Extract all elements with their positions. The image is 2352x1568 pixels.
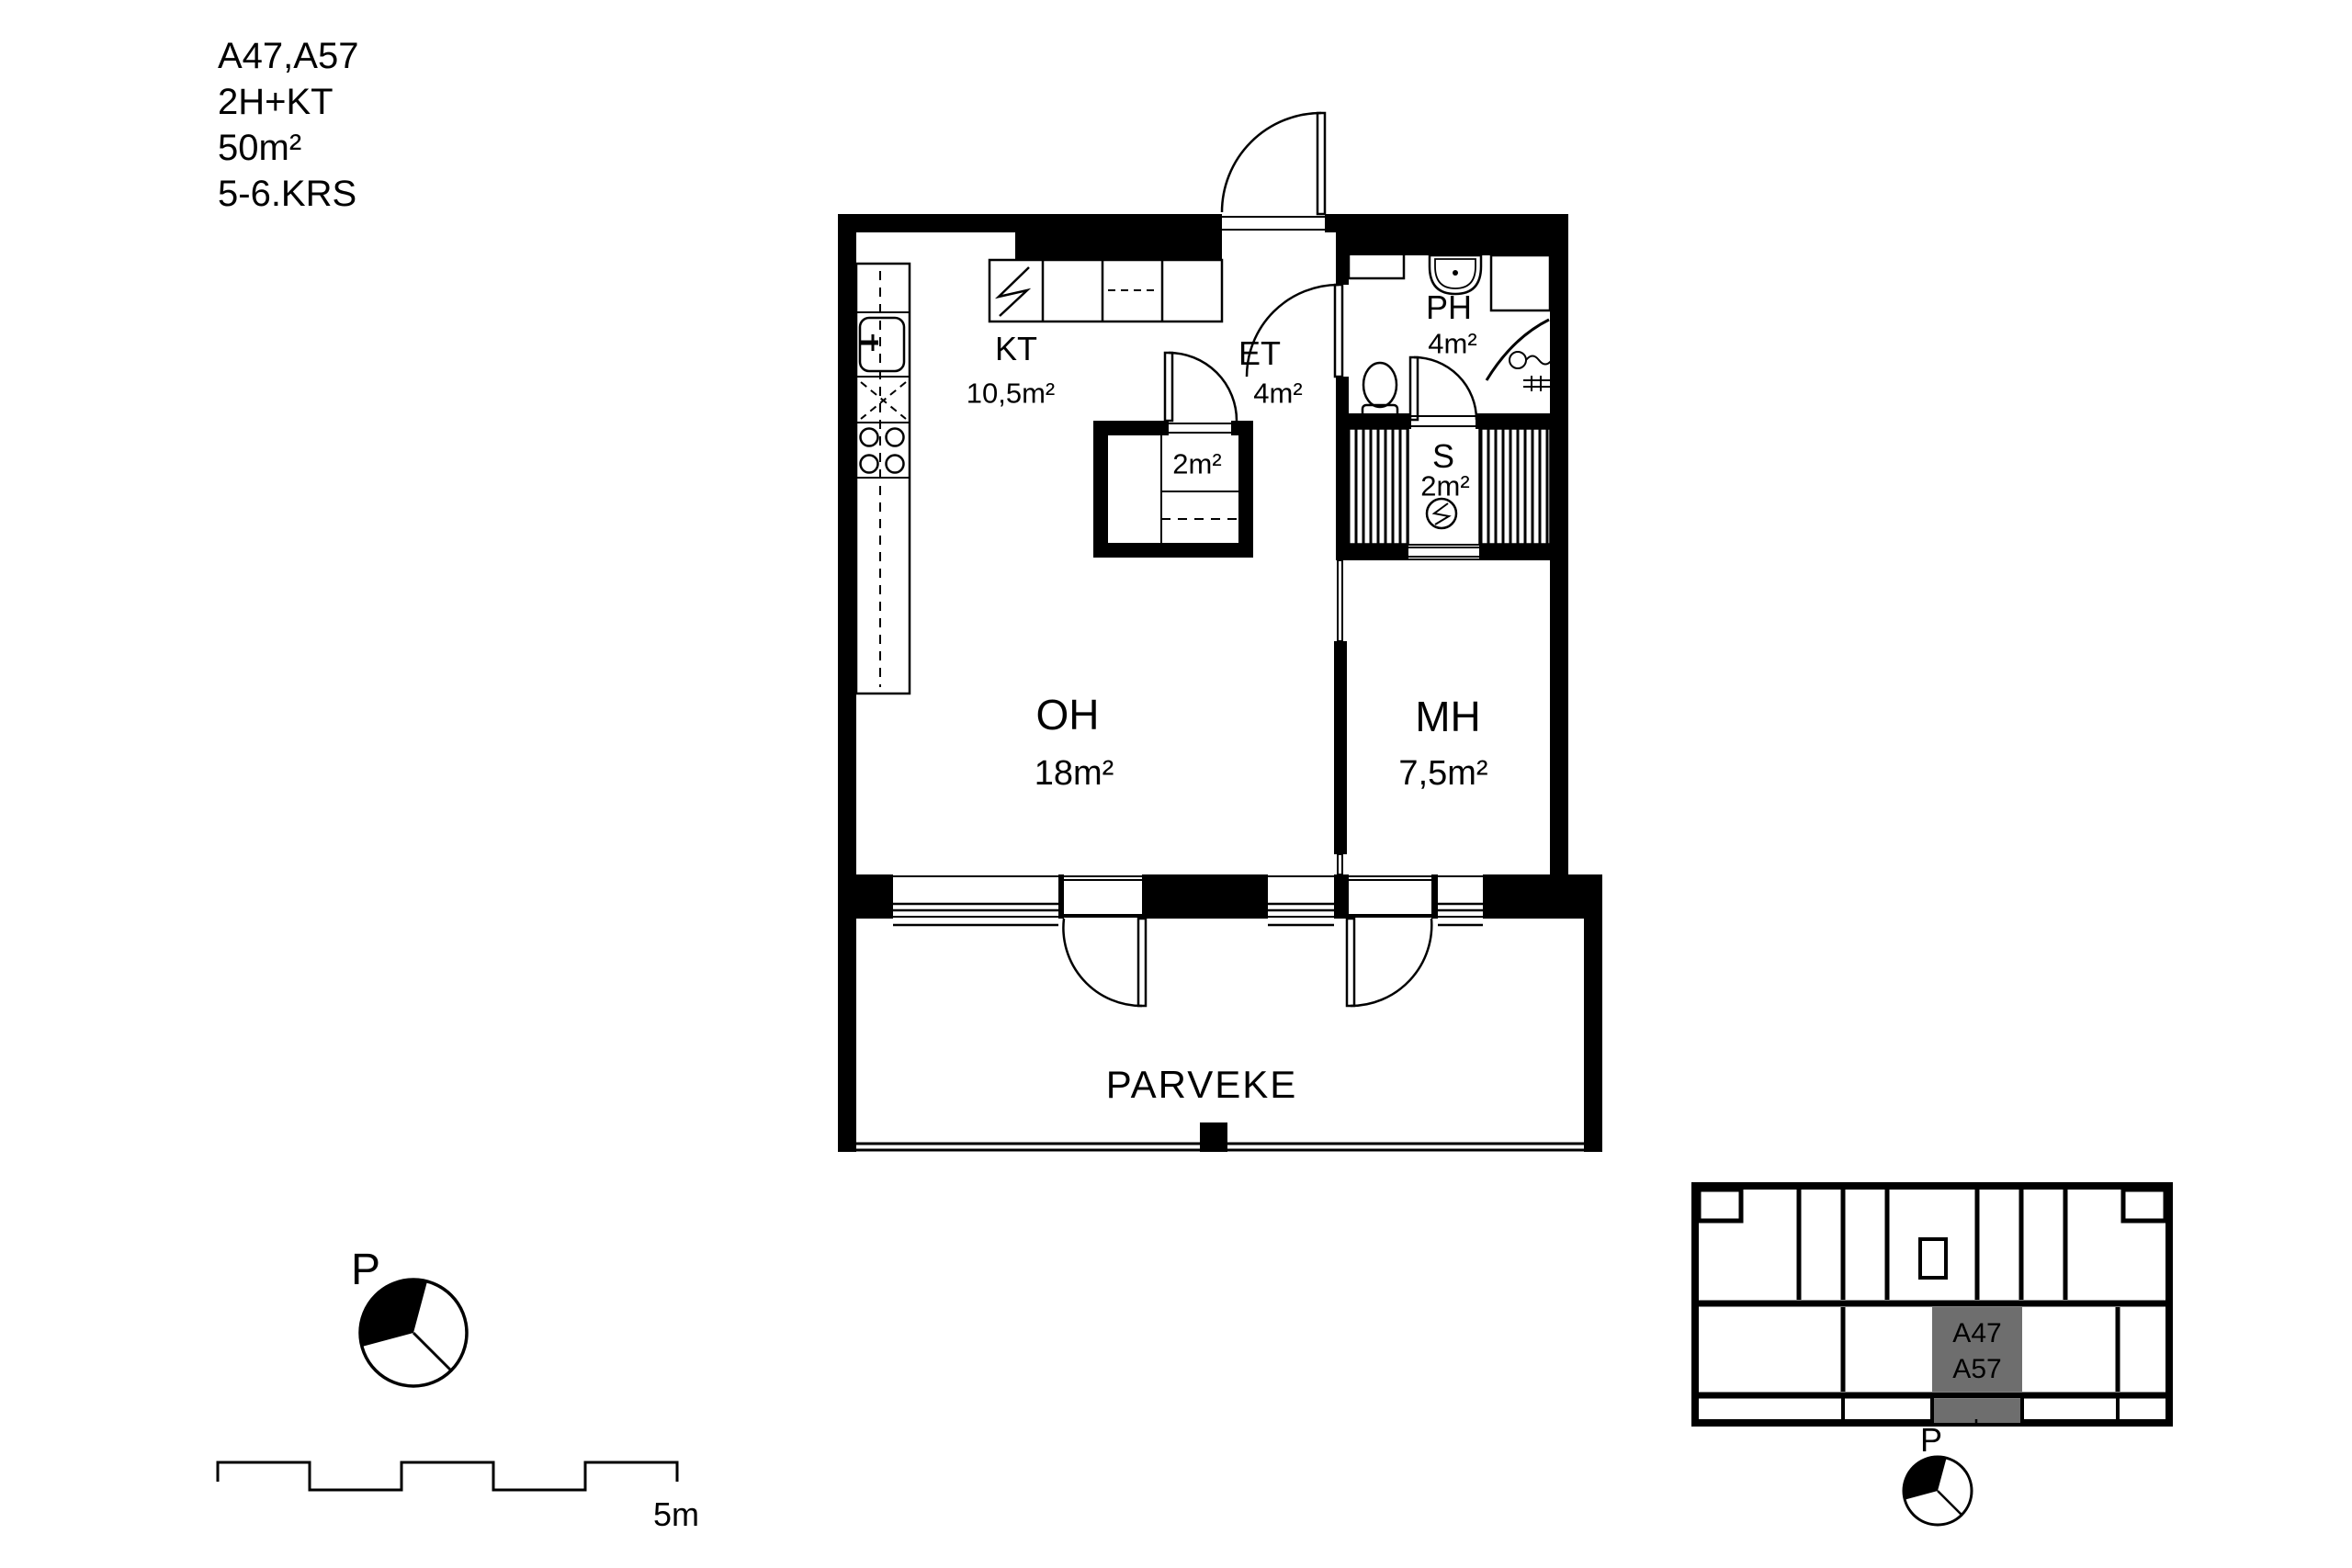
room-area-entry: 4m² (1253, 379, 1302, 408)
fridge-icon (999, 267, 1029, 316)
key-plan (1695, 1186, 2169, 1427)
sauna-bench-left (1349, 429, 1408, 544)
title-unit: A47,A57 (218, 33, 358, 79)
room-area-living: 18m² (1035, 756, 1114, 791)
sauna-bench-right (1479, 429, 1550, 544)
kitchen-cabinet-row (989, 260, 1222, 321)
keyplan-unit-label-2: A57 (1952, 1356, 2001, 1383)
scale-bar (218, 1462, 677, 1490)
scale-bar-label: 5m (653, 1498, 699, 1531)
room-label-living: OH (1036, 694, 1100, 736)
balcony-door-bedroom (1347, 880, 1431, 1006)
keyplan-stairwell (1920, 1239, 1946, 1278)
sauna-stove-icon (1427, 499, 1456, 528)
floor-plan-page: A47,A57 2H+KT 50m² 5-6.KRS KT 10,5m² ET … (0, 0, 2352, 1568)
title-floors: 5-6.KRS (218, 171, 358, 217)
room-label-sauna: S (1432, 440, 1454, 473)
balcony-post (1200, 1122, 1227, 1152)
compass-north-label: P (351, 1248, 380, 1292)
keyplan-notch-left (1699, 1190, 1741, 1221)
room-label-balcony: PARVEKE (1106, 1066, 1298, 1104)
window-living-1 (893, 904, 1058, 910)
room-label-entry: ET (1238, 337, 1281, 370)
kitchen-fixtures (856, 260, 1222, 694)
sauna-door (1410, 357, 1476, 426)
room-label-bedroom: MH (1415, 695, 1481, 738)
keyplan-compass-label: P (1920, 1424, 1942, 1457)
room-label-bathroom: PH (1426, 291, 1472, 324)
compass-rose-main (360, 1280, 467, 1386)
room-area-bedroom: 7,5m² (1398, 756, 1487, 791)
keyplan-notch-right (2123, 1190, 2165, 1221)
balcony-door-living (1063, 880, 1146, 1006)
balcony-structure (838, 919, 1602, 1152)
room-area-closet: 2m² (1172, 450, 1221, 479)
apartment-walls (838, 214, 1602, 919)
title-area: 50m² (218, 125, 358, 171)
room-label-kitchen: KT (995, 333, 1037, 366)
title-layout: 2H+KT (218, 79, 358, 125)
dishwasher-icon (861, 382, 906, 419)
bathroom-cabinet (1491, 255, 1550, 310)
closet-door (1165, 353, 1237, 421)
compass-rose-keyplan (1904, 1457, 1972, 1525)
window-bedroom (1438, 904, 1483, 910)
room-area-sauna: 2m² (1420, 472, 1469, 501)
room-area-kitchen: 10,5m² (967, 379, 1055, 408)
closet-walls (1093, 421, 1253, 558)
stove-icon (861, 429, 904, 473)
window-living-2 (1268, 904, 1334, 910)
room-area-bathroom: 4m² (1428, 330, 1476, 358)
keyplan-upper-units (1699, 1190, 2165, 1300)
entrance-door (1222, 113, 1325, 232)
title-block: A47,A57 2H+KT 50m² 5-6.KRS (218, 33, 358, 217)
sink-icon (860, 318, 904, 371)
keyplan-unit-label-1: A47 (1952, 1320, 2001, 1348)
shower-icon (1487, 320, 1552, 391)
